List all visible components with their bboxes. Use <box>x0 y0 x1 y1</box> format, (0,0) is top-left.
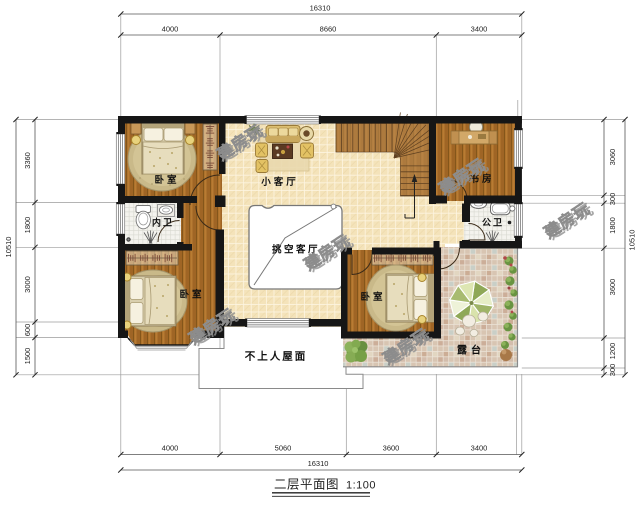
svg-text:600: 600 <box>23 324 32 337</box>
svg-text:1500: 1500 <box>23 348 32 365</box>
svg-text:不上人屋面: 不上人屋面 <box>245 350 308 363</box>
svg-text:16310: 16310 <box>308 459 329 468</box>
svg-text:3600: 3600 <box>608 279 617 296</box>
svg-text:3400: 3400 <box>471 444 488 453</box>
svg-text:1:100: 1:100 <box>346 480 376 492</box>
svg-text:卧室: 卧室 <box>154 174 179 186</box>
svg-text:5060: 5060 <box>275 444 292 453</box>
svg-text:300: 300 <box>608 193 617 206</box>
svg-text:二层平面图: 二层平面图 <box>274 478 339 492</box>
svg-text:1800: 1800 <box>23 217 32 234</box>
svg-text:露台: 露台 <box>457 344 485 357</box>
svg-text:小客厅: 小客厅 <box>260 176 299 188</box>
svg-text:内卫: 内卫 <box>152 217 174 228</box>
svg-text:3400: 3400 <box>471 25 488 34</box>
svg-text:8660: 8660 <box>320 25 337 34</box>
svg-text:3600: 3600 <box>383 444 400 453</box>
svg-text:1200: 1200 <box>608 343 617 360</box>
svg-text:10510: 10510 <box>628 230 637 251</box>
svg-text:卧室: 卧室 <box>360 291 385 303</box>
svg-text:4000: 4000 <box>162 25 179 34</box>
svg-text:3360: 3360 <box>23 152 32 169</box>
svg-text:300: 300 <box>608 364 617 377</box>
svg-text:4000: 4000 <box>162 444 179 453</box>
svg-text:3060: 3060 <box>608 149 617 166</box>
svg-text:3000: 3000 <box>23 276 32 293</box>
svg-text:公卫: 公卫 <box>482 218 504 228</box>
svg-text:16310: 16310 <box>310 4 331 13</box>
svg-text:卧室: 卧室 <box>179 289 204 301</box>
svg-text:10510: 10510 <box>4 237 13 258</box>
svg-text:1800: 1800 <box>608 217 617 234</box>
